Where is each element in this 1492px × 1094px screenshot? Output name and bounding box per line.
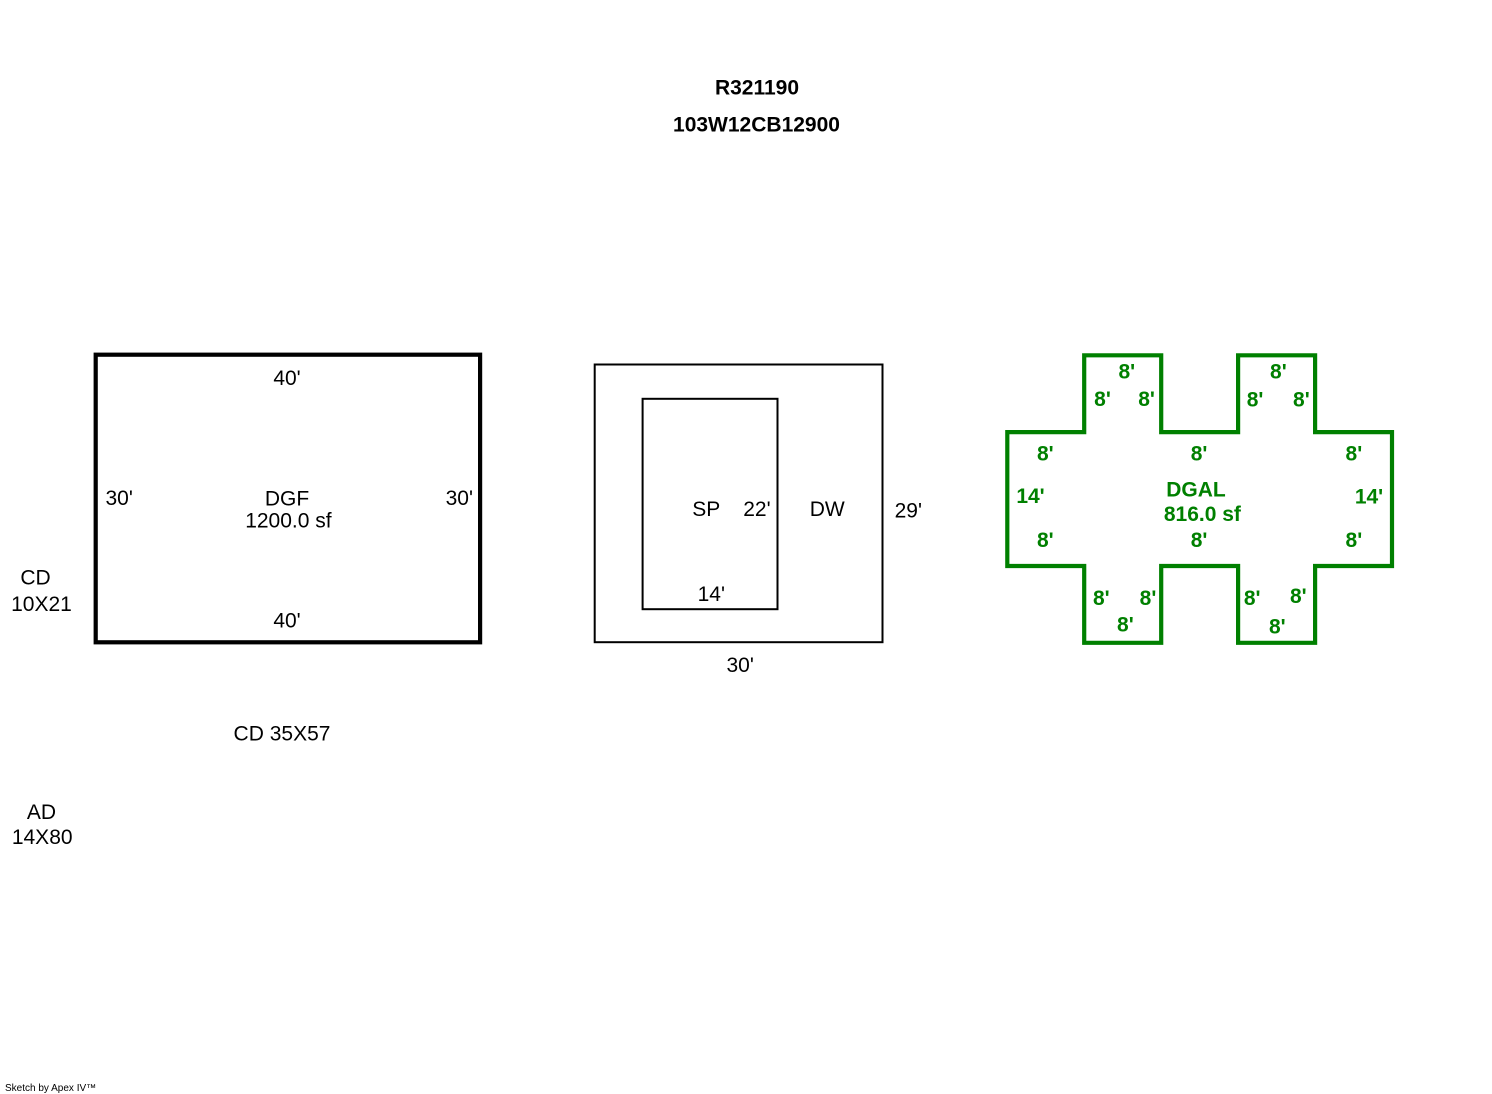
svg-text:8': 8' xyxy=(1037,443,1054,466)
svg-text:30': 30' xyxy=(446,487,473,510)
svg-text:8': 8' xyxy=(1270,361,1287,384)
svg-text:DGF: DGF xyxy=(265,488,309,511)
svg-text:8': 8' xyxy=(1346,529,1363,552)
svg-text:CD 35X57: CD 35X57 xyxy=(234,723,331,746)
svg-text:8': 8' xyxy=(1094,388,1111,411)
svg-text:14': 14' xyxy=(1016,485,1044,508)
svg-text:DW: DW xyxy=(810,498,845,521)
svg-text:14': 14' xyxy=(698,583,725,606)
svg-text:8': 8' xyxy=(1140,587,1157,610)
svg-text:8': 8' xyxy=(1244,587,1261,610)
svg-text:22': 22' xyxy=(743,498,770,521)
svg-text:8': 8' xyxy=(1346,443,1363,466)
svg-text:Sketch by Apex IV™: Sketch by Apex IV™ xyxy=(5,1083,96,1094)
svg-text:8': 8' xyxy=(1247,389,1264,412)
svg-text:R321190: R321190 xyxy=(715,77,799,100)
svg-text:40': 40' xyxy=(273,610,300,633)
svg-text:8': 8' xyxy=(1191,443,1208,466)
svg-text:14': 14' xyxy=(1355,486,1383,509)
svg-text:8': 8' xyxy=(1293,389,1310,412)
svg-text:816.0 sf: 816.0 sf xyxy=(1164,503,1242,526)
svg-text:8': 8' xyxy=(1037,529,1054,552)
svg-text:SP: SP xyxy=(692,498,720,521)
svg-text:AD: AD xyxy=(27,801,56,824)
svg-text:DGAL: DGAL xyxy=(1166,479,1226,502)
svg-text:103W12CB12900: 103W12CB12900 xyxy=(673,114,840,137)
svg-text:30': 30' xyxy=(106,487,133,510)
svg-text:8': 8' xyxy=(1117,614,1134,637)
svg-text:14X80: 14X80 xyxy=(12,826,73,849)
svg-text:CD: CD xyxy=(20,567,50,590)
svg-text:8': 8' xyxy=(1269,616,1286,639)
svg-text:8': 8' xyxy=(1093,587,1110,610)
svg-text:29': 29' xyxy=(895,500,922,523)
svg-text:8': 8' xyxy=(1191,529,1208,552)
svg-text:10X21: 10X21 xyxy=(11,593,72,616)
svg-text:40': 40' xyxy=(273,367,300,390)
svg-text:8': 8' xyxy=(1290,585,1307,608)
svg-text:8': 8' xyxy=(1138,388,1155,411)
svg-text:8': 8' xyxy=(1118,361,1135,384)
svg-text:30': 30' xyxy=(727,654,754,677)
svg-text:1200.0 sf: 1200.0 sf xyxy=(245,510,332,533)
